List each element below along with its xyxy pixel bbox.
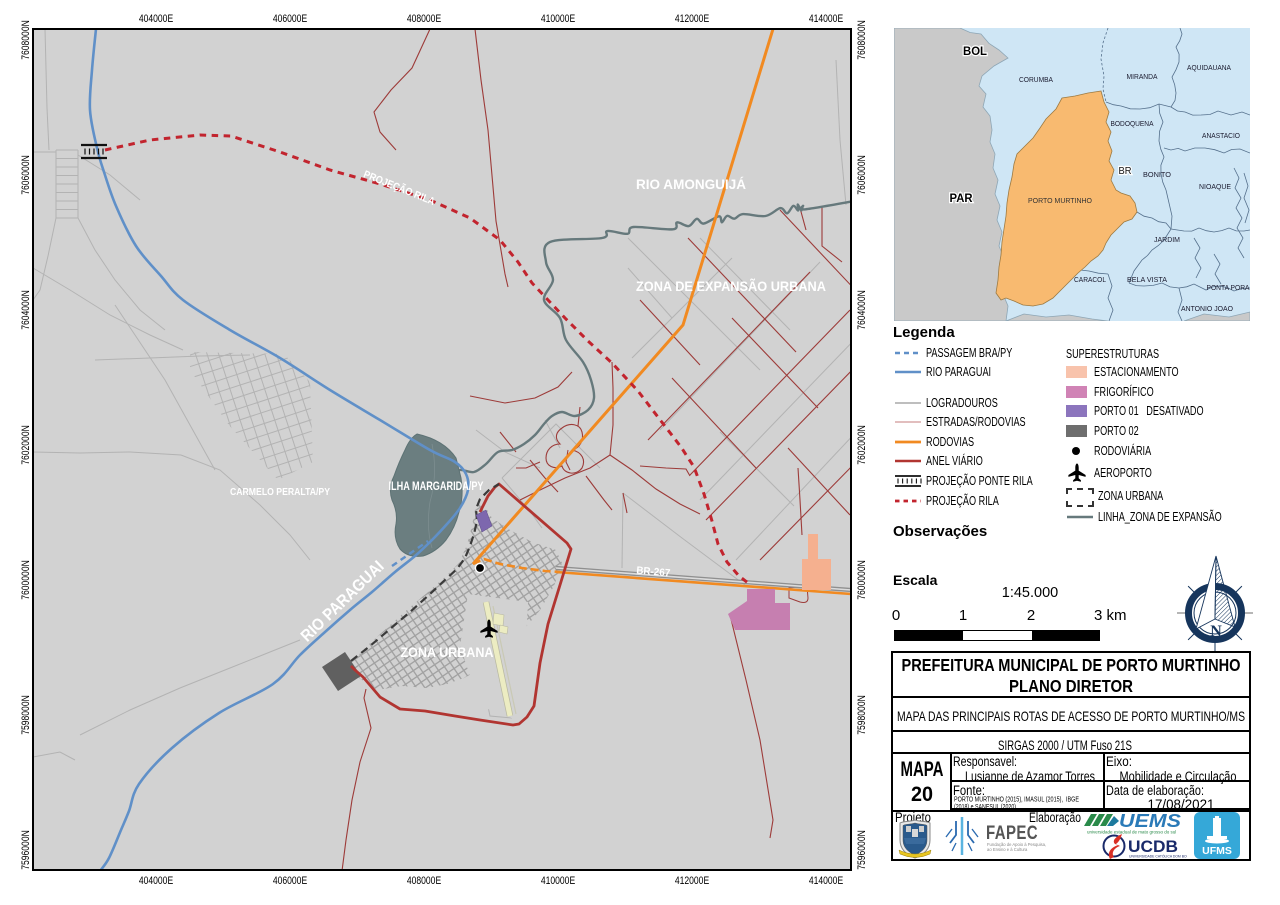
svg-text:BODOQUENA: BODOQUENA: [1111, 119, 1154, 128]
svg-text:ZONA URBANA: ZONA URBANA: [401, 644, 494, 660]
svg-text:FAPEC: FAPEC: [986, 823, 1038, 844]
svg-text:Responsavel:: Responsavel:: [953, 754, 1017, 769]
svg-text:Data de elaboração:: Data de elaboração:: [1106, 783, 1204, 798]
svg-text:UFMS: UFMS: [1202, 845, 1232, 857]
svg-text:PORTO MURTINHO: PORTO MURTINHO: [1028, 196, 1092, 205]
svg-text:BOL: BOL: [963, 44, 987, 58]
svg-text:NIOAQUE: NIOAQUE: [1199, 182, 1231, 191]
svg-text:N: N: [1210, 623, 1222, 640]
svg-text:ao Ensino e à Cultura: ao Ensino e à Cultura: [987, 847, 1028, 852]
svg-text:CORUMBA: CORUMBA: [1019, 75, 1053, 84]
svg-text:(2018) e SANESUL (2020): (2018) e SANESUL (2020): [954, 802, 1016, 811]
svg-text:JARDIM: JARDIM: [1154, 235, 1180, 244]
svg-text:RIO AMONGUIJÁ: RIO AMONGUIJÁ: [636, 176, 746, 192]
svg-text:SIRGAS 2000 / UTM Fuso 21S: SIRGAS 2000 / UTM Fuso 21S: [998, 737, 1132, 753]
svg-text:PLANO DIRETOR: PLANO DIRETOR: [1009, 676, 1133, 696]
svg-text:MAPA: MAPA: [901, 757, 944, 781]
svg-text:MIRANDA: MIRANDA: [1127, 72, 1158, 81]
svg-text:CARMELO PERALTA/PY: CARMELO PERALTA/PY: [230, 487, 330, 498]
svg-text:ANASTACIO: ANASTACIO: [1202, 131, 1240, 140]
svg-text:CARACOL: CARACOL: [1074, 275, 1106, 284]
svg-text:BR: BR: [1119, 165, 1132, 177]
svg-text:BONITO: BONITO: [1143, 170, 1171, 179]
svg-text:BELA VISTA: BELA VISTA: [1127, 275, 1167, 284]
svg-text:20: 20: [911, 782, 933, 806]
svg-text:PAR: PAR: [950, 191, 973, 205]
svg-text:UEMS: UEMS: [1119, 811, 1181, 831]
svg-text:PREFEITURA MUNICIPAL DE PORTO: PREFEITURA MUNICIPAL DE PORTO MURTINHO: [902, 655, 1241, 675]
svg-text:Mobilidade e Circulação: Mobilidade e Circulação: [1120, 769, 1237, 784]
svg-text:PONTA PORA: PONTA PORA: [1207, 283, 1250, 292]
svg-text:ANTONIO JOAO: ANTONIO JOAO: [1181, 304, 1233, 313]
svg-text:MAPA DAS PRINCIPAIS ROTAS DE A: MAPA DAS PRINCIPAIS ROTAS DE ACESSO DE P…: [897, 708, 1245, 724]
svg-text:ZONA DE EXPANSÃO URBANA: ZONA DE EXPANSÃO URBANA: [636, 277, 826, 294]
svg-text:UCDB: UCDB: [1128, 837, 1178, 856]
svg-text:AQUIDAUANA: AQUIDAUANA: [1187, 63, 1231, 72]
svg-text:Eixo:: Eixo:: [1106, 754, 1132, 769]
svg-text:Lusianne de Azamor Torres: Lusianne de Azamor Torres: [965, 769, 1095, 784]
svg-text:UNIVERSIDADE CATÓLICA DOM BOSC: UNIVERSIDADE CATÓLICA DOM BOSCO: [1129, 854, 1187, 859]
svg-text:ILHA MARGARIDA/PY: ILHA MARGARIDA/PY: [389, 481, 484, 493]
